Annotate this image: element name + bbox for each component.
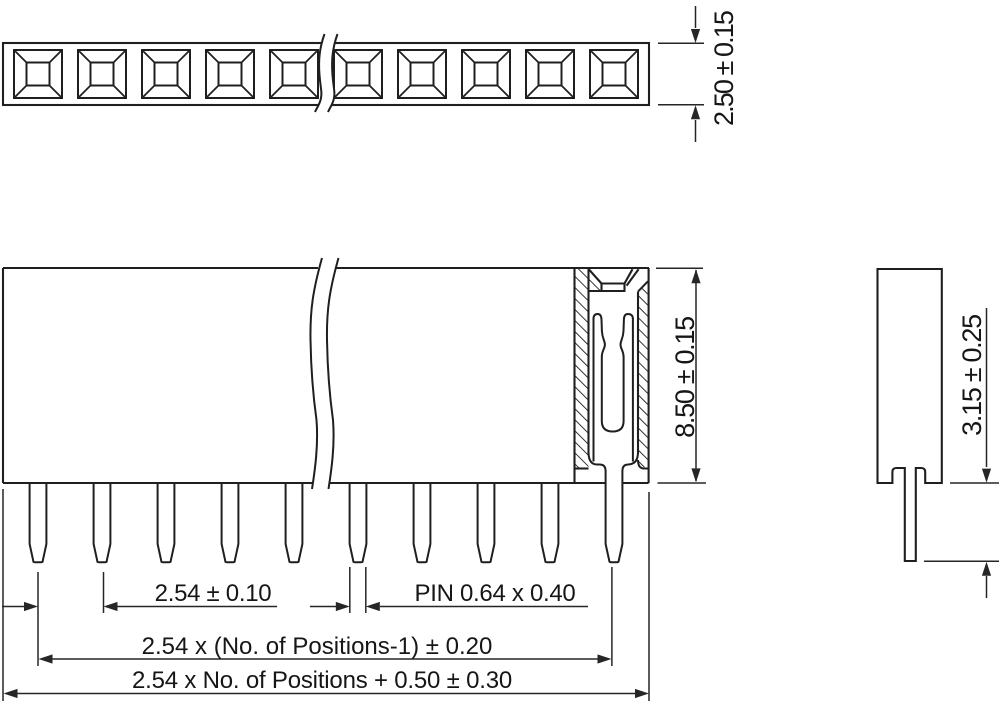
svg-text:2.50 ± 0.15: 2.50 ± 0.15 (709, 11, 739, 126)
svg-text:2.54 ± 0.10: 2.54 ± 0.10 (155, 580, 272, 607)
svg-text:8.50 ± 0.15: 8.50 ± 0.15 (670, 317, 700, 438)
svg-text:2.54 x No. of Positions + 0.50: 2.54 x No. of Positions + 0.50 ± 0.30 (132, 667, 512, 694)
svg-text:PIN 0.64 x 0.40: PIN 0.64 x 0.40 (415, 580, 576, 607)
svg-text:2.54 x (No. of Positions-1) ±: 2.54 x (No. of Positions-1) ± 0.20 (142, 633, 493, 660)
svg-text:3.15 ± 0.25: 3.15 ± 0.25 (957, 315, 987, 436)
